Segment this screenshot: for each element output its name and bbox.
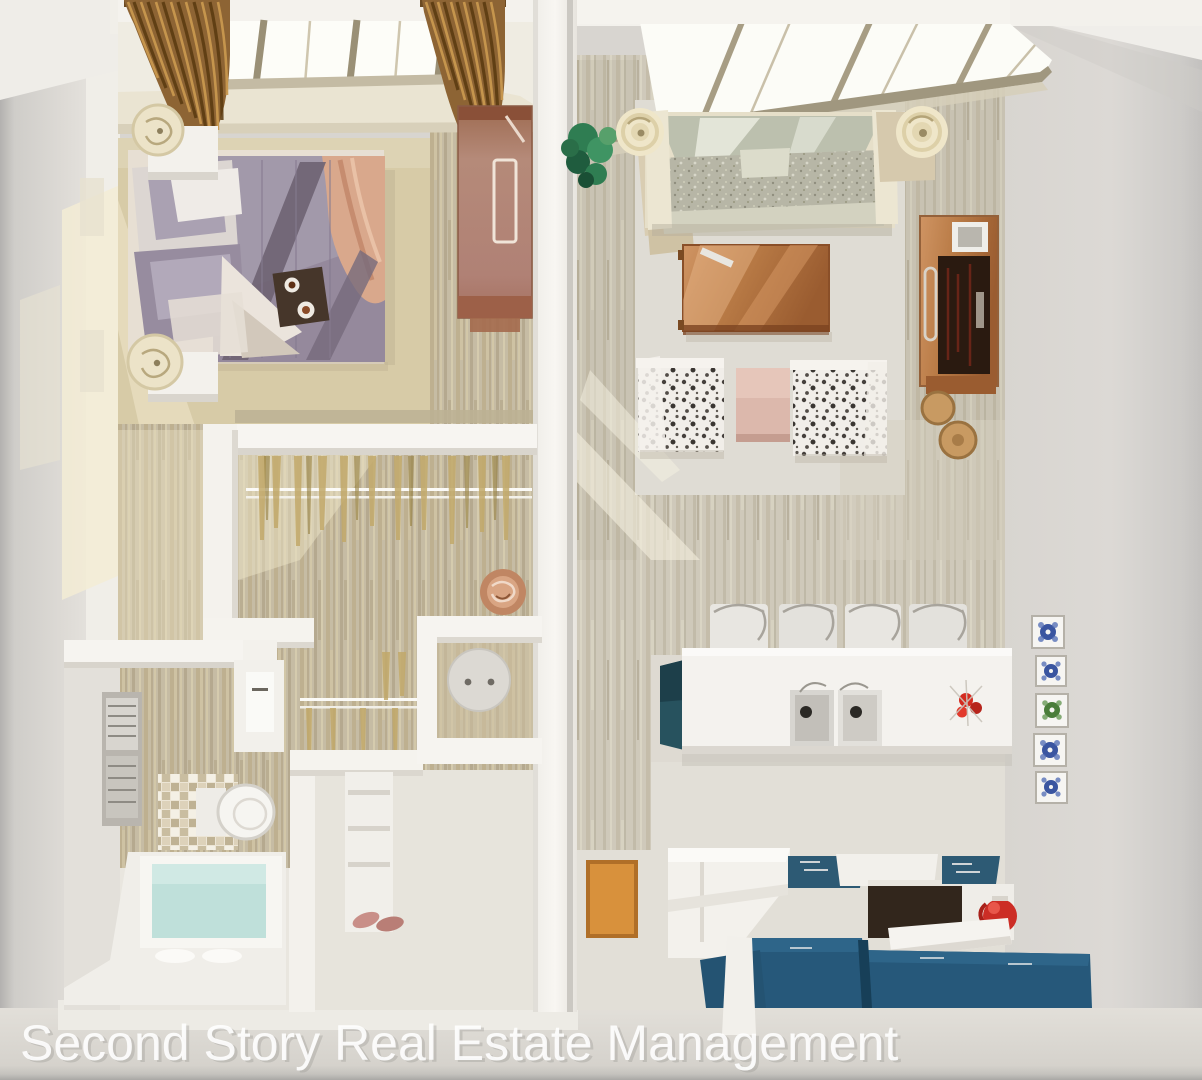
svg-text:Second Story Real Estate Manag: Second Story Real Estate Management xyxy=(20,1015,898,1071)
